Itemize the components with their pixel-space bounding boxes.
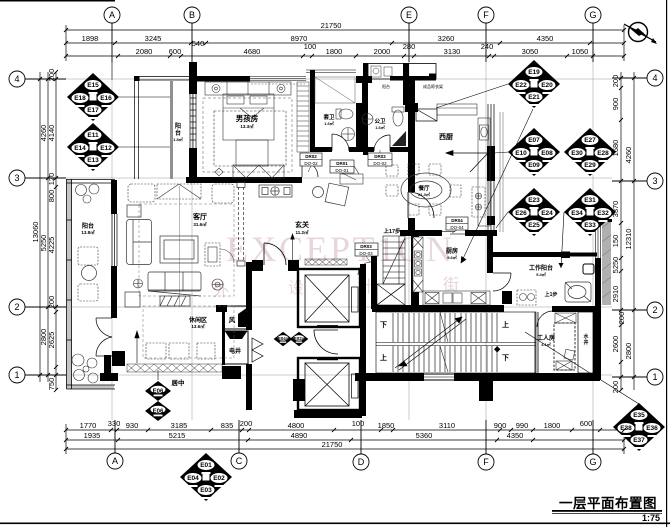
svg-text:西厨: 西厨 [439,132,453,141]
svg-text:600: 600 [580,419,593,428]
svg-text:900: 900 [494,421,507,430]
svg-text:E11: E11 [87,132,99,139]
svg-text:玄关: 玄关 [295,220,309,229]
svg-text:E19: E19 [528,69,540,76]
svg-text:1050: 1050 [572,47,589,56]
svg-text:上1步: 上1步 [545,291,558,298]
svg-text:E04a: E04a [278,336,289,341]
svg-text:3130: 3130 [444,47,461,56]
svg-text:男孩房: 男孩房 [236,113,259,123]
svg-text:4.1㎡: 4.1㎡ [541,341,551,347]
svg-text:电井: 电井 [229,347,241,355]
svg-text:E14: E14 [74,145,86,152]
svg-text:2080: 2080 [136,47,153,56]
svg-text:2910: 2910 [611,286,620,303]
svg-text:1.8㎡: 1.8㎡ [173,136,183,142]
svg-text:工作阳台: 工作阳台 [529,264,553,272]
svg-text:水: 水 [582,333,589,340]
svg-text:C: C [236,456,243,466]
svg-text:4890: 4890 [291,431,308,440]
svg-text:E36: E36 [646,425,658,432]
svg-text:540: 540 [192,39,205,48]
svg-text:休闲区: 休闲区 [188,316,207,324]
svg-text:E01: E01 [200,462,212,469]
svg-text:G: G [589,10,596,20]
svg-text:200: 200 [617,312,626,325]
svg-text:阳台: 阳台 [382,83,390,89]
svg-text:3: 3 [14,173,19,183]
svg-text:4: 4 [14,74,19,84]
svg-text:E13: E13 [87,157,99,164]
svg-text:E22: E22 [515,82,527,89]
svg-text:330: 330 [108,419,121,428]
svg-text:E03: E03 [200,487,212,494]
svg-text:DO-02: DO-02 [373,161,387,166]
svg-text:200: 200 [611,75,620,88]
svg-text:930: 930 [126,421,139,430]
svg-text:公卫: 公卫 [374,118,386,125]
svg-text:100: 100 [352,419,365,428]
svg-text:21750: 21750 [322,440,343,449]
svg-text:5215: 5215 [169,431,186,440]
svg-text:3245: 3245 [145,34,162,43]
svg-text:工人房: 工人房 [537,334,555,342]
svg-text:13.3㎡: 13.3㎡ [240,123,254,129]
svg-text:套卫: 套卫 [323,113,335,121]
svg-text:厨房: 厨房 [446,247,458,255]
svg-text:E06: E06 [153,409,164,415]
svg-text:5.4㎡: 5.4㎡ [536,271,546,277]
svg-text:E34: E34 [571,210,583,217]
svg-text:3: 3 [652,176,657,186]
svg-text:835: 835 [221,421,234,430]
svg-text:9.6㎡: 9.6㎡ [447,254,457,260]
svg-text:1: 1 [652,372,657,382]
svg-text:F: F [483,457,489,467]
svg-text:风: 风 [229,315,236,324]
svg-text:上17步: 上17步 [383,227,401,235]
svg-text:900: 900 [611,98,620,111]
svg-text:4680: 4680 [244,47,261,56]
svg-text:240: 240 [481,42,494,51]
svg-text:2625: 2625 [47,332,56,349]
svg-text:4140: 4140 [47,125,56,142]
svg-text:DR03: DR03 [360,244,372,249]
svg-text:E02a: E02a [294,336,305,341]
svg-text:5360: 5360 [416,431,433,440]
svg-text:E07: E07 [528,137,540,144]
svg-text:3260: 3260 [438,34,455,43]
svg-text:1935: 1935 [84,431,101,440]
svg-text:E31: E31 [584,197,596,204]
svg-text:4350: 4350 [507,431,524,440]
svg-text:2000: 2000 [374,47,391,56]
svg-text:3185: 3185 [171,421,188,430]
svg-text:E12: E12 [100,145,112,152]
svg-text:4800: 4800 [288,421,305,430]
svg-text:一层平面布置图: 一层平面布置图 [559,495,657,511]
svg-text:餐厅: 餐厅 [417,184,430,192]
svg-text:1770: 1770 [80,421,97,430]
svg-text:990: 990 [516,421,529,430]
svg-text:750: 750 [47,378,56,391]
svg-text:2600: 2600 [611,336,620,353]
svg-text:D: D [358,457,365,467]
svg-text:E10: E10 [515,150,527,157]
svg-text:600: 600 [169,47,182,56]
svg-text:上: 上 [502,320,509,329]
svg-text:1898: 1898 [82,34,99,43]
svg-text:100: 100 [304,42,317,51]
svg-text:客厅: 客厅 [192,212,207,221]
svg-text:2: 2 [652,305,657,315]
svg-text:E29: E29 [584,162,596,169]
svg-text:E21: E21 [528,94,540,101]
svg-text:A: A [112,456,118,466]
svg-text:4350: 4350 [537,34,554,43]
svg-text:E06: E06 [153,389,164,395]
svg-text:E26: E26 [515,210,527,217]
svg-text:设: 设 [288,279,304,297]
svg-text:12310: 12310 [624,229,633,250]
svg-text:F: F [483,10,489,20]
svg-text:E32: E32 [597,210,609,217]
svg-text:E20: E20 [541,82,553,89]
svg-text:E30: E30 [571,150,583,157]
svg-text:E15: E15 [87,82,99,89]
svg-text:E18: E18 [74,95,86,102]
svg-text:21.3㎡: 21.3㎡ [418,191,430,197]
svg-text:DO-04: DO-04 [450,225,464,230]
svg-text:G: G [589,457,596,467]
svg-text:1: 1 [14,370,19,380]
svg-text:200: 200 [47,69,56,82]
svg-text:E27: E27 [584,137,596,144]
svg-text:31.6㎡: 31.6㎡ [193,221,207,227]
svg-text:居中: 居中 [172,378,185,387]
svg-text:E38: E38 [620,425,632,432]
svg-text:2800: 2800 [624,343,633,360]
svg-text:1.6㎡: 1.6㎡ [324,120,334,126]
svg-text:3050: 3050 [522,47,539,56]
svg-text:1:75: 1:75 [642,513,660,523]
svg-text:DR01: DR01 [336,161,348,166]
svg-text:上: 上 [380,353,387,362]
svg-text:E25: E25 [528,222,540,229]
svg-text:800: 800 [47,190,56,203]
svg-text:2: 2 [14,302,19,312]
svg-text:5250: 5250 [611,257,620,274]
svg-text:E24: E24 [541,210,553,217]
svg-text:E23: E23 [528,197,540,204]
svg-text:DR04: DR04 [451,218,463,223]
svg-text:E37: E37 [633,437,645,444]
svg-text:E: E [406,10,412,20]
svg-text:E28: E28 [597,150,609,157]
svg-text:DO-01: DO-01 [335,168,349,173]
svg-text:E02: E02 [213,475,225,482]
svg-text:DO-02: DO-02 [304,161,318,166]
svg-text:成品晾衣架: 成品晾衣架 [423,83,443,89]
svg-text:DR02: DR02 [305,154,317,159]
svg-text:11.2㎡: 11.2㎡ [295,229,309,235]
svg-text:DR02: DR02 [374,154,386,159]
svg-text:E04: E04 [187,475,199,482]
svg-text:DO-03: DO-03 [359,251,373,256]
svg-text:13.8㎡: 13.8㎡ [81,229,95,235]
svg-text:阳台: 阳台 [82,222,94,230]
svg-text:4260: 4260 [624,147,633,164]
svg-text:21750: 21750 [321,21,342,30]
svg-text:阳: 阳 [175,122,181,130]
svg-text:E35: E35 [633,412,645,419]
svg-text:1.6㎡: 1.6㎡ [375,124,385,130]
svg-text:E17: E17 [87,107,99,114]
svg-text:下: 下 [380,321,387,329]
svg-text:1800: 1800 [544,421,561,430]
svg-text:E09: E09 [528,162,540,169]
svg-text:200: 200 [240,419,253,428]
svg-text:4225: 4225 [47,237,56,254]
svg-text:1850: 1850 [378,421,395,430]
svg-text:150: 150 [611,235,620,248]
svg-text:A: A [109,10,115,20]
svg-text:3110: 3110 [439,421,455,430]
svg-text:13.6㎡: 13.6㎡ [191,323,205,329]
svg-text:下: 下 [502,354,509,362]
svg-text:E33: E33 [584,222,596,229]
svg-text:B: B [189,10,195,20]
svg-text:台: 台 [175,129,181,137]
svg-text:井: 井 [583,339,588,346]
svg-text:E08: E08 [541,150,553,157]
svg-text:1800: 1800 [326,47,343,56]
svg-text:4: 4 [652,73,657,83]
svg-text:E16: E16 [100,95,112,102]
